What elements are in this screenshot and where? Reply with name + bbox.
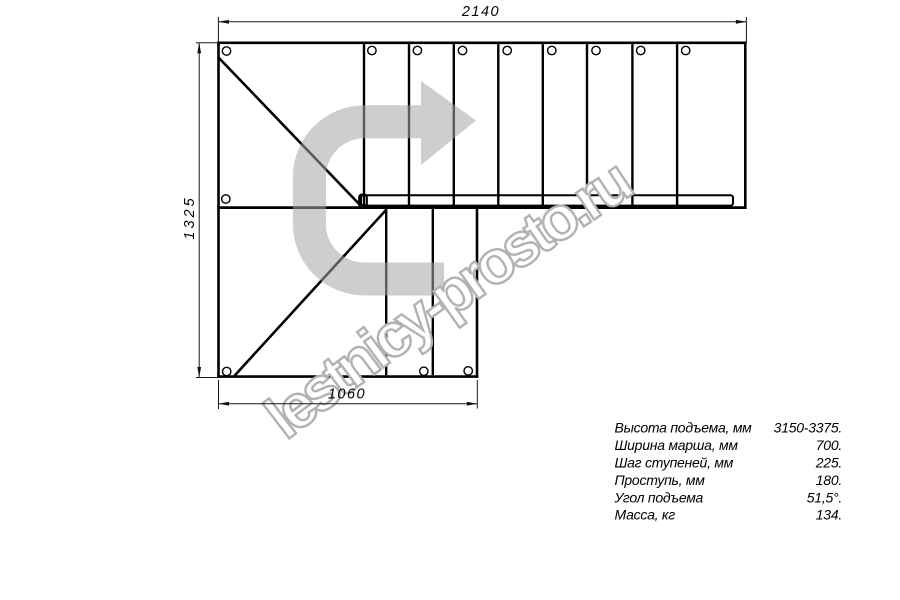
svg-text:Шаг ступеней, мм: Шаг ступеней, мм [615,455,734,471]
svg-text:1060: 1060 [328,387,366,403]
svg-text:2140: 2140 [461,4,500,20]
svg-text:Угол подъема: Угол подъема [614,489,704,505]
svg-text:3150-3375.: 3150-3375. [774,419,842,435]
svg-text:180.: 180. [816,472,842,488]
svg-text:700.: 700. [816,437,842,453]
svg-text:Ширина марша, мм: Ширина марша, мм [615,437,739,453]
svg-text:Проступь, мм: Проступь, мм [615,472,706,488]
svg-text:134.: 134. [816,507,842,523]
svg-text:51,5°.: 51,5°. [807,489,842,505]
svg-text:Масса, кг: Масса, кг [615,507,676,523]
svg-text:1325: 1325 [182,195,198,239]
svg-text:225.: 225. [815,455,842,471]
svg-text:Высота подъема, мм: Высота подъема, мм [615,419,753,435]
